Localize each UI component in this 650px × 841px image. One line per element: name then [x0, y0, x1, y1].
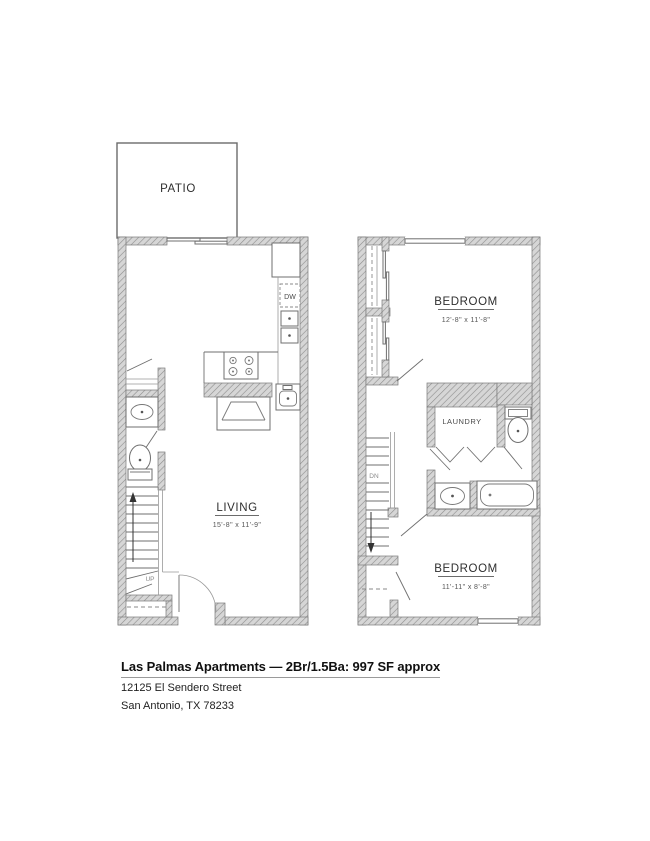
bedroom-lower-dims: 11'-11" x 8'-8"	[442, 584, 490, 591]
first-floor-walls	[118, 237, 308, 625]
laundry-bifold-right	[467, 447, 495, 462]
living-room-dims: 15'-8" x 11'-9"	[213, 522, 262, 529]
svg-text:BEDROOM: BEDROOM	[434, 563, 498, 575]
bedroom-lower-label: BEDROOM 11'-11" x 8'-8"	[434, 563, 498, 591]
bedroom-lower-window	[478, 617, 518, 625]
bath-vanity-sink	[435, 483, 470, 509]
caption-block: Las Palmas Apartments — 2Br/1.5Ba: 997 S…	[121, 658, 541, 714]
powder-room	[126, 397, 158, 480]
bath-hall-door	[430, 449, 450, 470]
toilet-first-floor	[128, 445, 152, 480]
patio-sliding-door	[167, 238, 227, 244]
bedroom-upper-window	[405, 237, 465, 245]
refrigerator	[272, 243, 300, 277]
plan-title: Las Palmas Apartments — 2Br/1.5Ba: 997 S…	[121, 659, 440, 678]
stairs-down: DN	[366, 432, 395, 553]
svg-text:LIVING: LIVING	[216, 502, 257, 514]
stairs-up-label: UP	[145, 576, 154, 583]
stairs-down-arrow	[368, 543, 375, 553]
kitchen-sink-right	[276, 384, 300, 410]
entry-door	[179, 575, 216, 612]
bedroom-lower-closet-door	[396, 572, 410, 600]
bedroom-lower-door	[401, 514, 427, 536]
patio-label: PATIO	[160, 183, 196, 195]
stairs-down-label: DN	[369, 473, 379, 480]
bedroom-upper-dims: 12'-8" x 11'-8"	[442, 317, 491, 324]
address-line-2: San Antonio, TX 78233	[121, 699, 541, 714]
kitchen-peninsula	[217, 397, 270, 430]
bedroom-lower-closet	[362, 572, 410, 600]
dishwasher: DW	[280, 284, 300, 307]
bedroom-upper-door	[397, 359, 423, 381]
floor-plan-svg: PATIO	[0, 0, 650, 841]
toilet-second-floor	[505, 407, 531, 443]
living-room-label: LIVING 15'-8" x 11'-9"	[213, 502, 262, 529]
svg-text:BEDROOM: BEDROOM	[434, 296, 498, 308]
hall-closet	[126, 359, 158, 384]
laundry-closet: LAUNDRY	[436, 417, 495, 462]
floor-plan-sheet: PATIO	[0, 0, 650, 841]
dishwasher-label: DW	[284, 294, 296, 301]
bath-door	[504, 447, 522, 469]
stove	[224, 352, 258, 379]
stairs-up: UP	[126, 487, 179, 595]
stairs-up-arrow	[130, 492, 137, 502]
kitchen: DW	[204, 243, 300, 430]
patio: PATIO	[117, 143, 237, 238]
laundry-label: LAUNDRY	[442, 417, 481, 426]
powder-vanity-sink	[126, 397, 158, 427]
first-floor-plan: PATIO	[117, 143, 308, 625]
kitchen-double-sink	[281, 311, 298, 343]
bedroom-upper-label: BEDROOM 12'-8" x 11'-8"	[434, 296, 498, 324]
address-line-1: 12125 El Sendero Street	[121, 681, 541, 696]
second-floor-plan: LAUNDRY	[358, 237, 540, 625]
bathtub	[477, 481, 537, 509]
